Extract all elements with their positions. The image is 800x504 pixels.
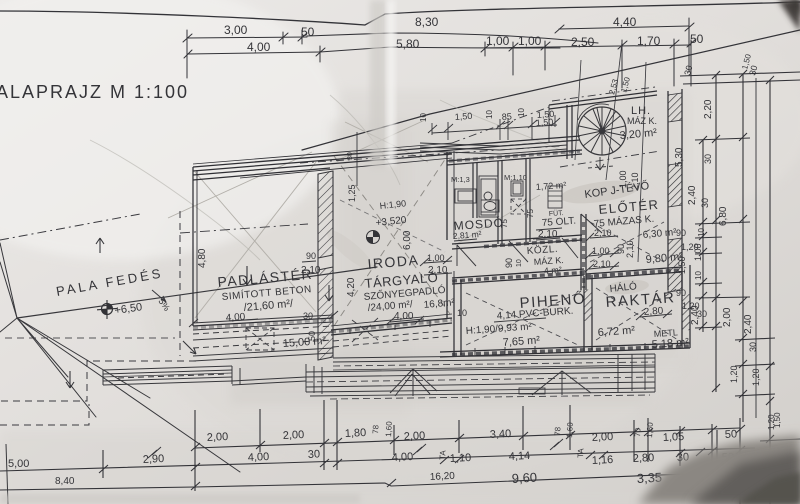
svg-text:4,14: 4,14 [509, 450, 531, 463]
svg-text:70: 70 [633, 427, 642, 437]
svg-text:2,80: 2,80 [633, 452, 655, 465]
svg-text:8,40: 8,40 [55, 476, 75, 487]
svg-text:30: 30 [748, 342, 758, 352]
svg-text:2,10: 2,10 [625, 240, 635, 258]
svg-text:5,30: 5,30 [674, 147, 685, 167]
svg-text:2,00: 2,00 [722, 307, 733, 327]
svg-text:2,00: 2,00 [207, 431, 229, 444]
svg-text:1,20: 1,20 [751, 368, 761, 386]
svg-text:1,70: 1,70 [637, 34, 661, 48]
svg-text:2,10: 2,10 [593, 259, 611, 269]
svg-text:1,50: 1,50 [677, 256, 687, 274]
svg-text:10: 10 [516, 259, 523, 267]
svg-text:75: 75 [500, 219, 509, 228]
svg-text:1,25: 1,25 [347, 184, 357, 202]
svg-text:8,30: 8,30 [415, 15, 439, 29]
svg-text:1,60: 1,60 [565, 422, 575, 439]
svg-text:2,10: 2,10 [594, 228, 612, 238]
svg-text:2,00: 2,00 [283, 429, 305, 442]
svg-text:10: 10 [457, 308, 467, 318]
svg-text:1,50: 1,50 [535, 117, 553, 128]
svg-text:M:1,3: M:1,3 [451, 175, 470, 184]
svg-text:1,72 m²: 1,72 m² [535, 180, 566, 192]
svg-text:1,00: 1,00 [518, 34, 542, 48]
svg-text:2,40: 2,40 [743, 314, 754, 334]
svg-text:4,00: 4,00 [392, 451, 414, 464]
svg-text:4,00: 4,00 [225, 312, 246, 324]
svg-text:TA: TA [576, 447, 586, 458]
svg-text:9,60: 9,60 [511, 470, 537, 486]
svg-text:6,80: 6,80 [718, 206, 729, 226]
svg-text:4,20: 4,20 [346, 277, 357, 297]
svg-text:30: 30 [347, 152, 354, 160]
svg-text:1,50: 1,50 [454, 111, 472, 122]
svg-text:1,16: 1,16 [592, 454, 614, 467]
svg-text:10: 10 [485, 110, 494, 119]
svg-text:90: 90 [504, 258, 514, 268]
svg-text:MÁZ K.: MÁZ K. [627, 116, 657, 126]
svg-text:10: 10 [697, 228, 706, 237]
svg-text:2,40: 2,40 [687, 185, 698, 205]
svg-text:85: 85 [501, 111, 512, 122]
svg-text:1,05: 1,05 [663, 431, 685, 444]
svg-text:3,00: 3,00 [224, 23, 248, 37]
svg-text:50: 50 [307, 331, 317, 341]
svg-text:1,60: 1,60 [384, 421, 394, 438]
svg-text:1,00: 1,00 [592, 246, 610, 256]
svg-text:2,50: 2,50 [571, 35, 595, 49]
svg-text:2,81 m²: 2,81 m² [452, 229, 482, 241]
svg-text:90: 90 [676, 228, 686, 238]
svg-text:2,00: 2,00 [592, 431, 614, 444]
svg-text:4,40: 4,40 [613, 15, 637, 29]
svg-text:4,00: 4,00 [248, 451, 270, 464]
svg-text:TA: TA [438, 449, 448, 460]
svg-text:5,80: 5,80 [396, 37, 420, 51]
svg-text:50: 50 [725, 428, 738, 441]
svg-text:2,80: 2,80 [643, 306, 664, 318]
svg-text:2,40: 2,40 [690, 305, 701, 325]
svg-text:30: 30 [703, 154, 713, 164]
svg-text:ALAPRAJZ M 1:100: ALAPRAJZ M 1:100 [0, 82, 189, 102]
svg-text:90: 90 [306, 251, 316, 261]
svg-text:2,90: 2,90 [143, 453, 165, 466]
svg-text:78: 78 [553, 426, 562, 436]
svg-text:30: 30 [308, 448, 321, 461]
svg-text:1,10: 1,10 [450, 452, 472, 465]
svg-text:1,60: 1,60 [645, 422, 655, 439]
svg-text:4,80: 4,80 [197, 248, 208, 268]
svg-text:2,00: 2,00 [404, 430, 426, 443]
svg-text:5,00: 5,00 [8, 458, 29, 470]
svg-text:4,00: 4,00 [247, 40, 271, 54]
svg-text:1,20: 1,20 [729, 365, 739, 383]
svg-text:78: 78 [371, 424, 380, 434]
svg-text:1,00: 1,00 [693, 243, 703, 261]
svg-text:M:1,10: M:1,10 [504, 173, 527, 182]
svg-text:2,10: 2,10 [538, 229, 558, 240]
svg-text:90: 90 [676, 288, 686, 298]
svg-text:3,40: 3,40 [490, 428, 512, 441]
svg-text:16,20: 16,20 [430, 471, 456, 483]
svg-text:50: 50 [301, 25, 315, 39]
svg-text:75: 75 [526, 209, 535, 218]
svg-text:10: 10 [694, 271, 703, 280]
svg-text:2,20: 2,20 [703, 99, 714, 119]
svg-text:1,80: 1,80 [345, 427, 367, 440]
svg-text:10: 10 [419, 113, 428, 122]
svg-text:50: 50 [690, 32, 704, 46]
svg-text:1,50: 1,50 [773, 412, 782, 428]
svg-text:30: 30 [700, 198, 710, 208]
svg-text:1,00: 1,00 [486, 34, 510, 48]
